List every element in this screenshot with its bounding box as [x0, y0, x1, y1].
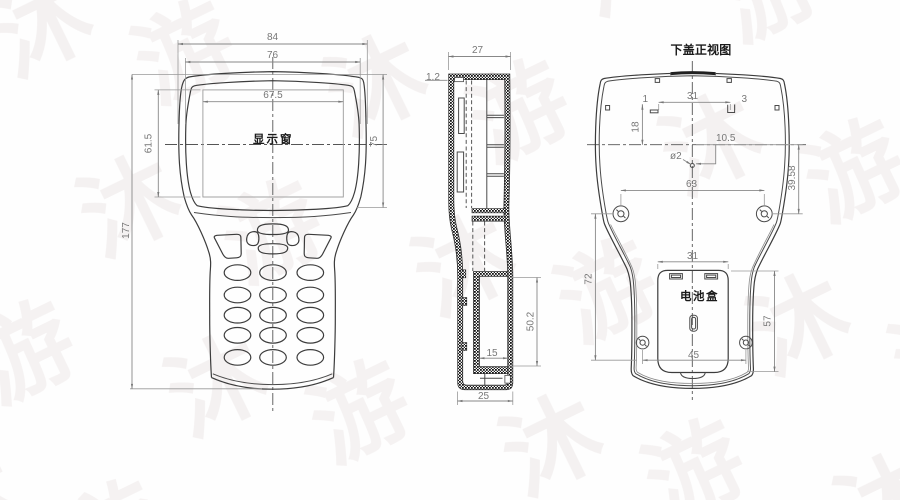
svg-text:76: 76 [267, 50, 279, 61]
svg-text:50.2: 50.2 [526, 311, 537, 331]
svg-text:18: 18 [631, 121, 642, 133]
svg-text:84: 84 [267, 32, 279, 43]
svg-text:3: 3 [742, 94, 748, 105]
svg-text:ø2: ø2 [670, 151, 682, 162]
svg-text:39.58: 39.58 [787, 165, 798, 190]
svg-text:75: 75 [369, 136, 380, 148]
svg-text:10.5: 10.5 [716, 133, 736, 144]
svg-text:45: 45 [688, 350, 700, 361]
svg-text:61.5: 61.5 [144, 133, 155, 153]
svg-text:下盖正视图: 下盖正视图 [671, 42, 732, 57]
svg-text:27: 27 [472, 45, 484, 56]
svg-text:57: 57 [763, 315, 774, 327]
svg-text:电池盒: 电池盒 [680, 289, 719, 303]
svg-text:1: 1 [643, 94, 649, 105]
svg-text:67.5: 67.5 [263, 90, 283, 101]
svg-text:72: 72 [584, 273, 595, 285]
svg-text:25: 25 [478, 391, 490, 402]
svg-text:31: 31 [687, 91, 699, 102]
svg-text:15: 15 [487, 348, 499, 359]
svg-text:31: 31 [687, 251, 699, 262]
svg-text:63: 63 [686, 179, 698, 190]
svg-text:1.2: 1.2 [426, 72, 440, 83]
svg-text:显示窗: 显示窗 [253, 132, 294, 146]
svg-text:177: 177 [121, 222, 132, 239]
